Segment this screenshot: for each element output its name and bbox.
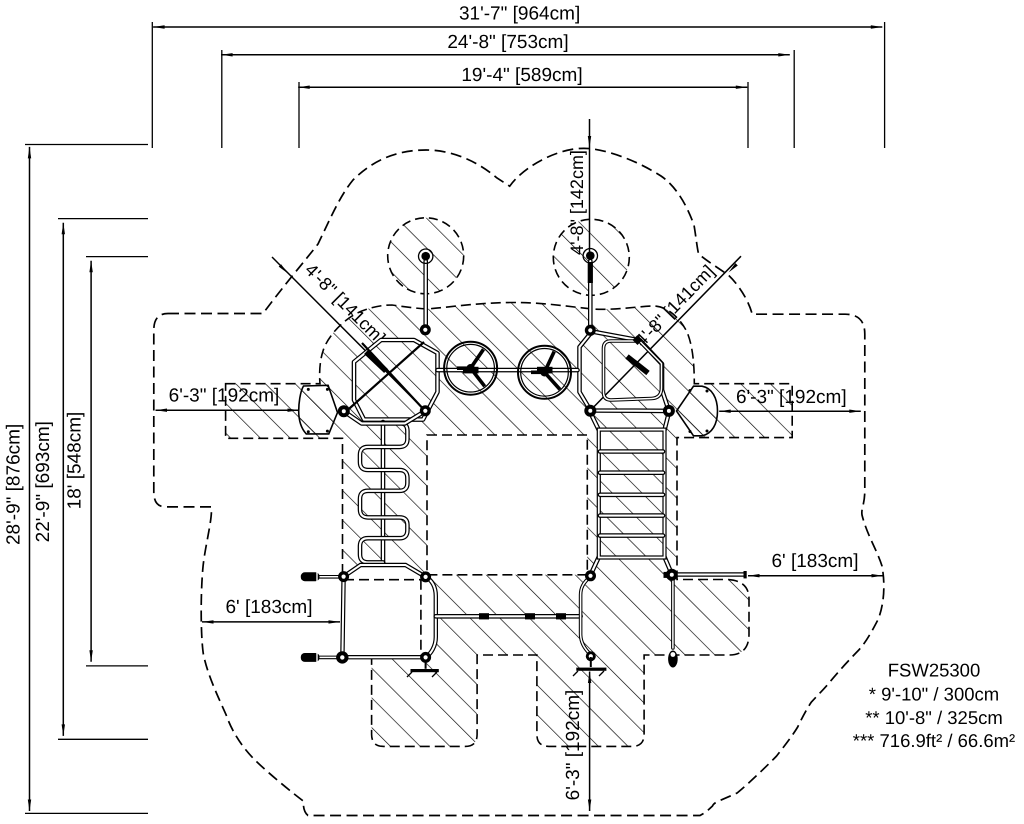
svg-text:** 10'-8" / 325cm: ** 10'-8" / 325cm — [865, 707, 1003, 728]
svg-text:6'-3" [192cm]: 6'-3" [192cm] — [169, 386, 280, 407]
svg-text:22'-9" [693cm]: 22'-9" [693cm] — [33, 421, 54, 542]
svg-text:28'-9" [876cm]: 28'-9" [876cm] — [4, 424, 25, 545]
svg-text:6' [183cm]: 6' [183cm] — [225, 597, 312, 618]
svg-text:18' [548cm]: 18' [548cm] — [65, 412, 86, 510]
svg-text:FSW25300: FSW25300 — [888, 660, 981, 681]
svg-text:19'-4" [589cm]: 19'-4" [589cm] — [461, 65, 582, 86]
svg-text:31'-7" [964cm]: 31'-7" [964cm] — [459, 4, 580, 25]
svg-text:4'-8" [142cm]: 4'-8" [142cm] — [567, 150, 587, 255]
svg-text:* 9'-10" / 300cm: * 9'-10" / 300cm — [869, 684, 999, 705]
svg-text:6'-3" [192cm]: 6'-3" [192cm] — [736, 387, 847, 408]
svg-text:*** 716.9ft² / 66.6m²: *** 716.9ft² / 66.6m² — [853, 730, 1015, 751]
svg-text:24'-8" [753cm]: 24'-8" [753cm] — [447, 32, 568, 53]
svg-text:6' [183cm]: 6' [183cm] — [771, 551, 858, 572]
svg-text:6'-3" [192cm]: 6'-3" [192cm] — [563, 690, 584, 801]
